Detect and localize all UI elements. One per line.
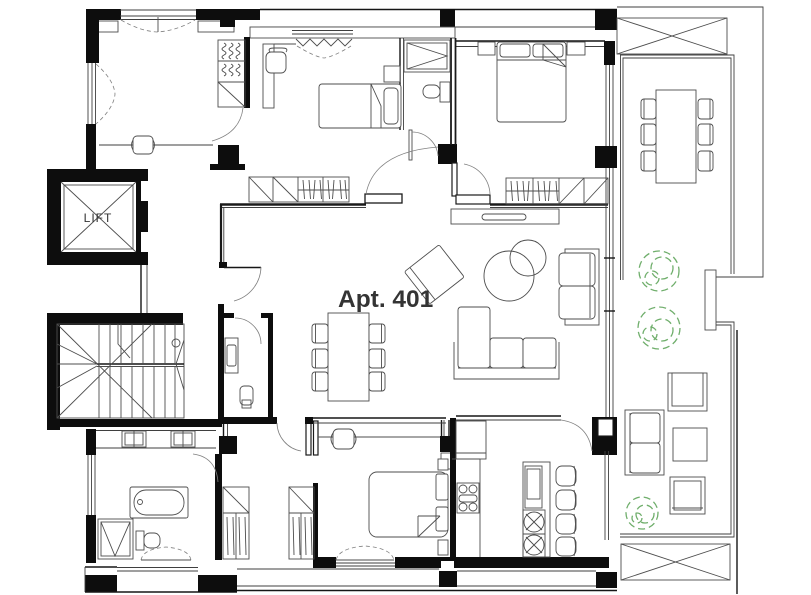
svg-text:LIFT: LIFT — [84, 211, 113, 225]
svg-text:Apt. 401: Apt. 401 — [338, 286, 433, 313]
